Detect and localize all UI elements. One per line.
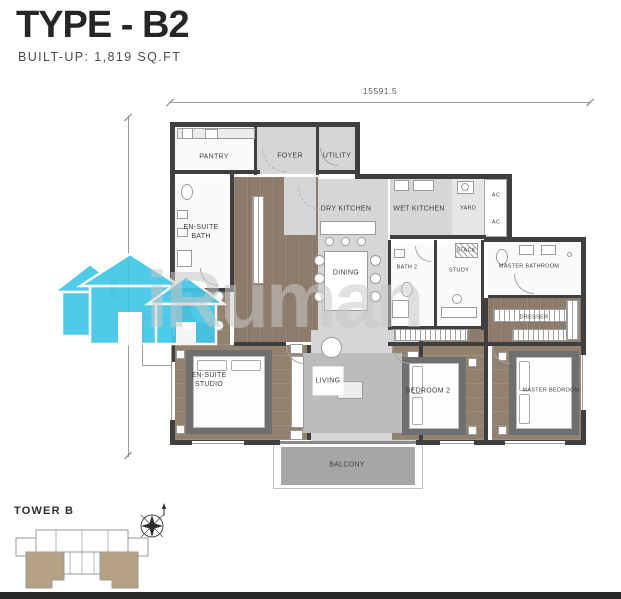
dimension-line-top	[170, 102, 590, 103]
page-title: TYPE - B2	[16, 4, 189, 47]
compass-icon	[137, 503, 171, 543]
wardrobe	[512, 329, 570, 341]
label-stack: STACK	[456, 247, 475, 254]
wall	[390, 235, 486, 239]
wall	[170, 170, 260, 174]
shower-head-icon	[567, 252, 572, 257]
wall	[170, 122, 360, 127]
wall	[484, 298, 488, 443]
label-dry-kitchen: DRY KITCHEN	[321, 204, 372, 213]
built-up-subtitle: BUILT-UP: 1,819 SQ.FT	[18, 50, 181, 64]
wall	[581, 237, 586, 445]
ac-ledge-right	[484, 179, 507, 237]
label-master-bedroom: MASTER BEDROOM	[522, 387, 579, 394]
desk	[441, 307, 477, 318]
fridge-icon	[182, 128, 193, 139]
label-wet-kitchen: WET KITCHEN	[393, 204, 444, 213]
nightstand	[176, 350, 185, 359]
sofa	[291, 356, 304, 428]
label-pantry: PANTRY	[199, 152, 229, 161]
label-balcony: BALCONY	[329, 460, 365, 469]
label-dresser: DRESSER	[520, 314, 549, 321]
pillow	[519, 394, 530, 424]
washer-drum	[461, 183, 469, 191]
label-foyer: FOYER	[277, 151, 303, 160]
pillow	[412, 397, 423, 425]
window	[505, 441, 565, 445]
label-yard: YARD	[460, 205, 476, 212]
label-ensuite-studio: EN-SUITE STUDIO	[191, 371, 226, 389]
bottom-bar	[0, 592, 621, 599]
label-living: LIVING	[313, 366, 344, 395]
label-ac: AC	[492, 192, 500, 199]
label-bedroom2: BEDROOM 2	[406, 386, 451, 395]
toilet-icon	[181, 184, 193, 200]
pillow	[231, 360, 261, 371]
sink-icon	[394, 180, 409, 191]
sink-icon	[205, 129, 218, 139]
tower-label: TOWER B	[14, 505, 74, 517]
label-ensuite-bath: EN-SUITE BATH	[183, 223, 218, 241]
sink-icon	[519, 245, 534, 255]
window	[581, 355, 586, 410]
wall	[434, 240, 437, 330]
label-ac: AC	[492, 219, 500, 226]
kitchen-island	[320, 221, 376, 235]
wall	[355, 174, 512, 179]
nightstand	[468, 358, 477, 367]
nightstand	[468, 426, 477, 435]
dresser-wardrobe	[566, 300, 579, 340]
stool	[341, 237, 350, 246]
nightstand	[176, 425, 185, 434]
sliding-door	[280, 441, 416, 444]
label-master-bathroom: MASTER BATHROOM	[499, 263, 559, 270]
wall	[316, 122, 319, 175]
sink-icon	[541, 245, 556, 255]
wall	[507, 174, 512, 240]
nightstand	[498, 426, 507, 435]
window	[440, 441, 474, 445]
stove-icon	[413, 180, 434, 191]
floorplan-page: TYPE - B2 BUILT-UP: 1,819 SQ.FT 15591.5 …	[0, 0, 621, 599]
stool	[325, 237, 334, 246]
pillow	[197, 360, 227, 371]
wall	[316, 170, 358, 174]
label-utility: UTILITY	[323, 151, 351, 160]
watermark-text: iRuman	[146, 254, 421, 346]
keyplan-building	[8, 526, 158, 590]
window	[170, 362, 175, 420]
wall	[488, 295, 582, 298]
side-table	[290, 430, 303, 440]
dimension-top-value: 15591.5	[363, 86, 397, 96]
sink-icon	[177, 210, 188, 219]
stool	[357, 237, 366, 246]
label-study: STUDY	[449, 267, 469, 274]
window	[192, 441, 244, 445]
chair	[452, 294, 462, 304]
wall	[484, 237, 586, 242]
